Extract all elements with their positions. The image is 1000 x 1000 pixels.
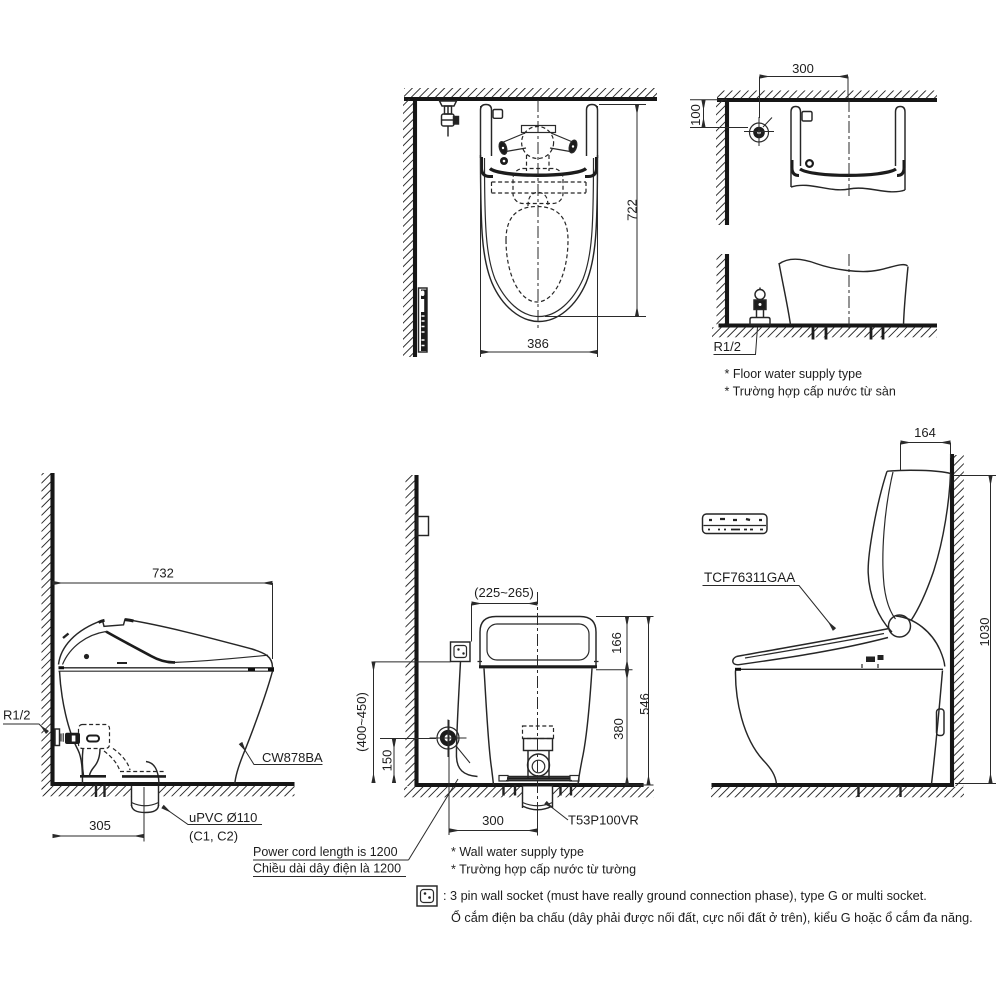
svg-text:546: 546	[637, 693, 652, 715]
svg-text:* Trường hợp cấp nước từ sàn: * Trường hợp cấp nước từ sàn	[725, 385, 896, 399]
svg-text:TCF76311GAA: TCF76311GAA	[704, 570, 795, 585]
svg-text:(400~450): (400~450)	[354, 692, 369, 752]
svg-text:Chiều dài dây điện là 1200: Chiều dài dây điện là 1200	[253, 862, 401, 876]
svg-text:166: 166	[609, 632, 624, 654]
svg-text:Ổ cắm điện ba chấu (dây phải đ: Ổ cắm điện ba chấu (dây phải được nối đấ…	[451, 910, 973, 925]
svg-text:: 3 pin wall socket (must have: : 3 pin wall socket (must have really gr…	[443, 889, 927, 903]
svg-text:(225~265): (225~265)	[474, 585, 534, 600]
svg-text:R1/2: R1/2	[714, 339, 741, 354]
svg-text:100: 100	[688, 104, 703, 126]
svg-text:722: 722	[625, 199, 640, 221]
svg-text:305: 305	[89, 818, 111, 833]
svg-text:300: 300	[482, 813, 504, 828]
svg-text:380: 380	[611, 718, 626, 740]
svg-text:* Wall water supply type: * Wall water supply type	[451, 845, 584, 859]
svg-text:R1/2: R1/2	[3, 708, 30, 723]
svg-text:uPVC Ø110: uPVC Ø110	[189, 810, 257, 825]
svg-text:1030: 1030	[977, 618, 992, 647]
svg-text:T53P100VR: T53P100VR	[568, 813, 639, 828]
svg-text:* Trường hợp cấp nước từ tường: * Trường hợp cấp nước từ tường	[451, 863, 636, 877]
svg-text:732: 732	[152, 566, 174, 581]
svg-text:CW878BA: CW878BA	[262, 750, 323, 765]
svg-text:* Floor water supply type: * Floor water supply type	[725, 367, 863, 381]
svg-text:Power cord length is 1200: Power cord length is 1200	[253, 845, 398, 859]
svg-text:300: 300	[792, 61, 814, 76]
svg-text:150: 150	[380, 750, 395, 772]
svg-text:(C1, C2): (C1, C2)	[189, 829, 238, 844]
svg-text:386: 386	[527, 336, 549, 351]
svg-text:164: 164	[914, 425, 936, 440]
